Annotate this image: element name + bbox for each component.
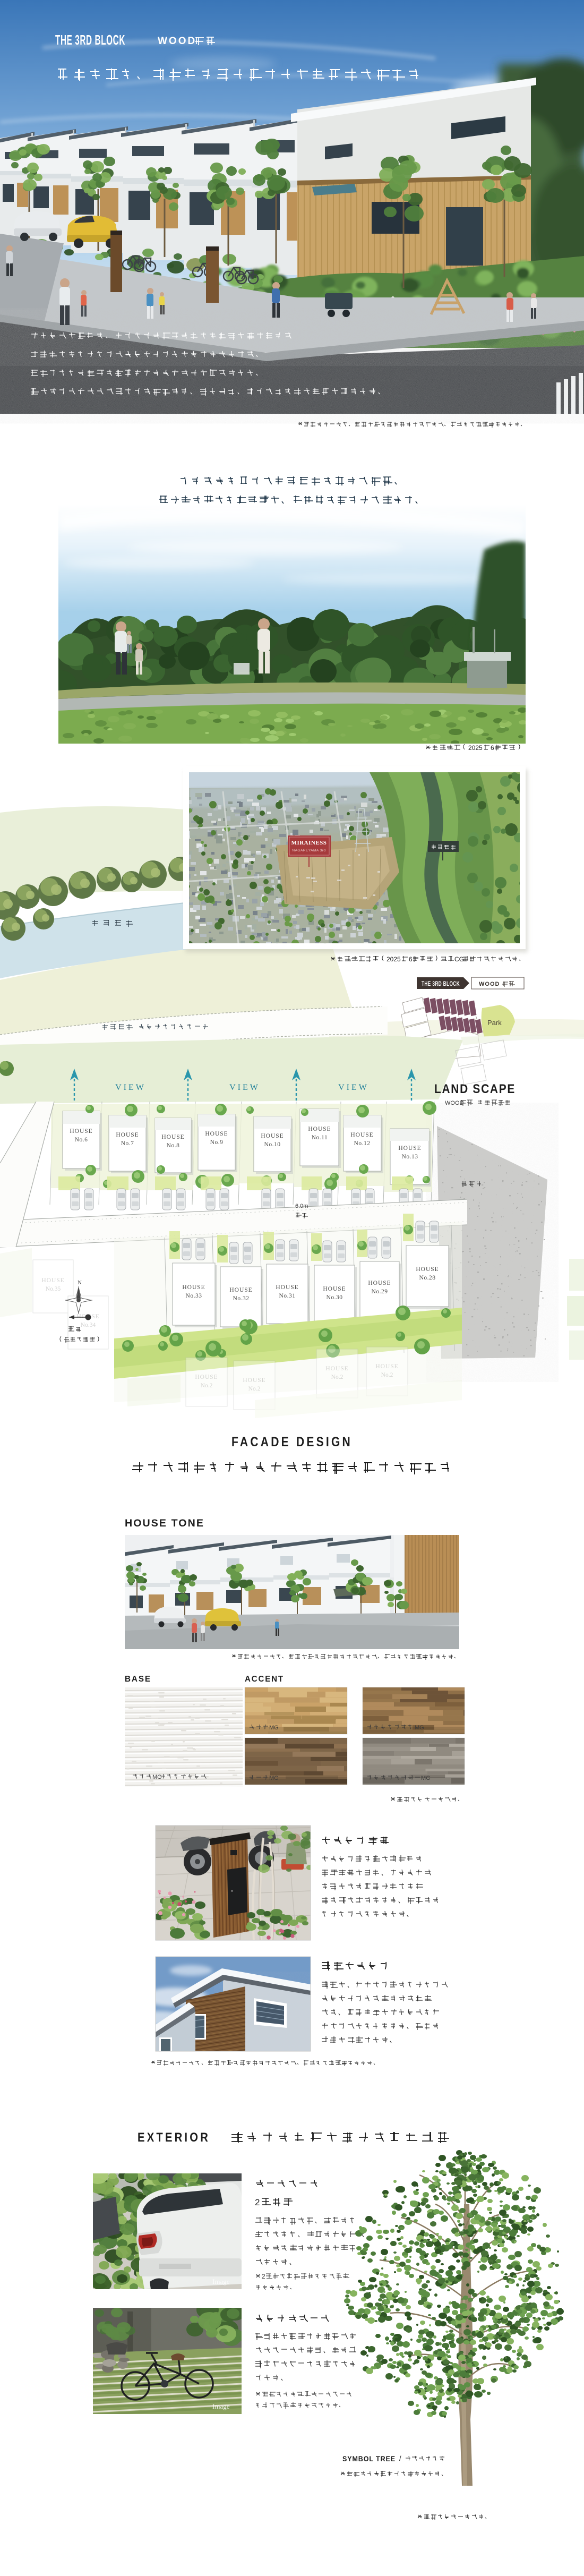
svg-text:SYMBOL TREE: SYMBOL TREE [342, 2454, 396, 2463]
svg-text:HOUSE: HOUSE [205, 1131, 228, 1137]
svg-text:MG: MG [269, 1725, 279, 1731]
svg-text:No.2: No.2 [248, 1386, 261, 1392]
svg-text:HOUSE: HOUSE [416, 1266, 439, 1273]
svg-text:HOUSE: HOUSE [375, 1363, 398, 1370]
svg-text:WOOD: WOOD [158, 36, 196, 47]
svg-text:Image: Image [212, 2278, 230, 2285]
svg-text:HOUSE: HOUSE [323, 1286, 346, 1292]
svg-text:Park: Park [487, 1019, 502, 1027]
svg-text:LAND SCAPE: LAND SCAPE [434, 1082, 516, 1096]
svg-text:No.34: No.34 [81, 1322, 96, 1328]
svg-text:No.10: No.10 [264, 1141, 281, 1148]
svg-text:WOOD: WOOD [479, 981, 500, 987]
svg-text:VIEW: VIEW [115, 1083, 146, 1092]
svg-text:No.33: No.33 [186, 1293, 202, 1299]
svg-text:HOUSE TONE: HOUSE TONE [125, 1518, 204, 1529]
svg-text:MIRAINESS: MIRAINESS [291, 840, 327, 846]
svg-text:No.13: No.13 [402, 1154, 418, 1160]
svg-text:HOUSE: HOUSE [182, 1284, 205, 1291]
svg-text:No.29: No.29 [372, 1289, 388, 1295]
svg-text:MG: MG [269, 1775, 279, 1781]
svg-text:HOUSE: HOUSE [261, 1133, 284, 1139]
svg-text:THE 3RD BLOCK: THE 3RD BLOCK [55, 32, 125, 48]
svg-text:MG: MG [415, 1725, 424, 1731]
svg-text:No.8: No.8 [167, 1142, 180, 1149]
svg-text:No.2: No.2 [381, 1372, 393, 1378]
svg-text:No.2: No.2 [201, 1383, 213, 1389]
svg-text:HOUSE: HOUSE [161, 1134, 184, 1140]
svg-text:HOUSE: HOUSE [116, 1132, 139, 1138]
svg-text:HOUSE: HOUSE [368, 1280, 391, 1286]
svg-text:No.2: No.2 [331, 1374, 343, 1380]
svg-text:MG: MG [421, 1775, 431, 1781]
svg-text:No.7: No.7 [121, 1140, 134, 1147]
svg-text:BASE: BASE [125, 1675, 151, 1684]
svg-text:ACCENT: ACCENT [245, 1675, 284, 1684]
svg-text:/: / [399, 2454, 401, 2462]
svg-text:Image: Image [212, 2402, 230, 2410]
svg-text:CG: CG [454, 956, 464, 963]
svg-text:WOOD: WOOD [445, 1100, 463, 1106]
svg-text:THE 3RD BLOCK: THE 3RD BLOCK [422, 980, 460, 987]
svg-text:HOUSE: HOUSE [243, 1377, 265, 1384]
svg-text:FACADE DESIGN: FACADE DESIGN [231, 1435, 353, 1449]
svg-text:No.35: No.35 [46, 1286, 61, 1292]
svg-text:HOUSE: HOUSE [398, 1145, 421, 1151]
svg-text:No.31: No.31 [279, 1293, 296, 1299]
svg-text:No.9: No.9 [210, 1139, 224, 1146]
svg-text:2: 2 [255, 2197, 260, 2207]
svg-text:No.28: No.28 [419, 1275, 436, 1281]
svg-text:HOUSE: HOUSE [70, 1128, 92, 1135]
svg-text:6: 6 [491, 744, 494, 752]
svg-text:HOUSE: HOUSE [41, 1277, 64, 1284]
svg-text:HOUSE: HOUSE [350, 1132, 373, 1138]
svg-text:6.0m: 6.0m [295, 1203, 308, 1209]
svg-text:HOUSE: HOUSE [308, 1126, 331, 1132]
svg-text:VIEW: VIEW [229, 1083, 260, 1092]
svg-text:EXTERIOR: EXTERIOR [138, 2130, 210, 2145]
svg-text:No.30: No.30 [327, 1294, 343, 1301]
svg-text:No.32: No.32 [233, 1295, 250, 1302]
svg-text:NAGAREYAMA 3rd: NAGAREYAMA 3rd [292, 849, 325, 852]
svg-text:6: 6 [409, 956, 413, 963]
svg-text:2025: 2025 [468, 744, 483, 752]
svg-text:N: N [78, 1280, 82, 1286]
svg-text:No.11: No.11 [312, 1135, 328, 1141]
svg-text:No.6: No.6 [75, 1137, 88, 1143]
svg-text:HOUSE: HOUSE [229, 1287, 252, 1293]
svg-text:VIEW: VIEW [338, 1083, 369, 1092]
svg-text:MG: MG [152, 1774, 162, 1780]
svg-text:No.12: No.12 [354, 1140, 371, 1147]
svg-text:HOUSE: HOUSE [195, 1374, 218, 1380]
svg-text:HOUSE: HOUSE [325, 1366, 348, 1372]
svg-text:2025: 2025 [387, 956, 401, 963]
svg-text:2: 2 [262, 2273, 265, 2280]
svg-text:HOUSE: HOUSE [276, 1284, 298, 1291]
